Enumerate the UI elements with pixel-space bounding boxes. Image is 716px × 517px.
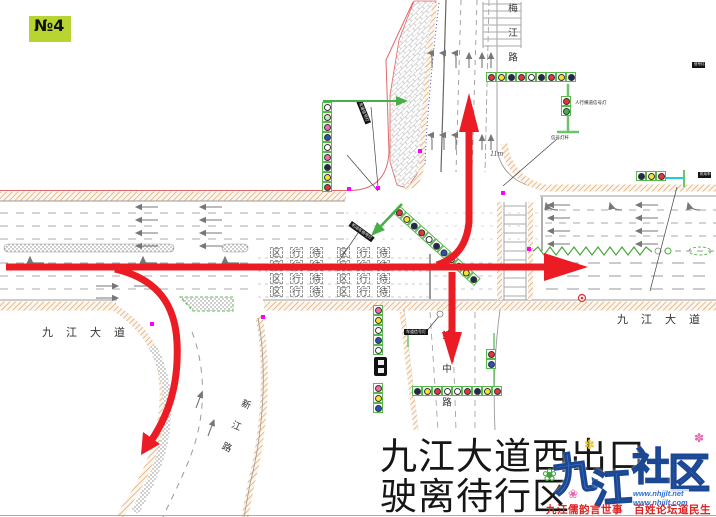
traffic-diagram-canvas: №4 九江大道 九江大道 梅江路 建中路 新江路 11m 区行待区行待区行待区行…	[0, 0, 716, 517]
yellow-flower-icon: ✽	[584, 438, 595, 451]
waiting-zone-cell: 区	[270, 260, 283, 271]
waiting-zone-grid: 区行待区行待区行待区行待区行待区行待区行待区行待	[270, 247, 390, 299]
waiting-zone-cell: 待	[310, 260, 323, 271]
waiting-zone-cell: 区	[337, 286, 350, 297]
waiting-zone-row: 区行待区行待	[270, 286, 390, 297]
waiting-zone-cell: 待	[310, 273, 323, 284]
sheet-number-badge: №4	[29, 16, 71, 42]
waiting-zone-cell: 区	[270, 273, 283, 284]
waiting-zone-cell: 区	[337, 247, 350, 258]
annotation-tag-east: 机动车信号灯	[698, 172, 711, 178]
waiting-zone-group: 区行待	[337, 286, 390, 297]
road-label-south: 建中路	[438, 330, 452, 430]
waiting-zone-row: 区行待区行待	[270, 260, 390, 271]
watermark-char-3: 社	[632, 436, 670, 491]
waiting-zone-cell: 待	[377, 286, 390, 297]
north-road	[390, 0, 716, 188]
waiting-zone-group: 区行待	[270, 260, 323, 271]
waiting-zone-cell: 行	[357, 273, 370, 284]
waiting-zone-group: 区行待	[270, 247, 323, 258]
waiting-zone-cell: 行	[290, 286, 303, 297]
clover-flower-icon: ❀	[542, 466, 557, 484]
watermark-url-net: www.nhjjlt.net	[633, 489, 688, 498]
waiting-zone-cell: 区	[337, 273, 350, 284]
road-label-east-avenue: 九江大道	[617, 311, 713, 327]
waiting-zone-cell: 待	[377, 247, 390, 258]
waiting-zone-group: 区行待	[337, 273, 390, 284]
waiting-zone-cell: 区	[337, 260, 350, 271]
waiting-zone-cell: 行	[357, 247, 370, 258]
waiting-zone-cell: 待	[310, 286, 323, 297]
waiting-zone-cell: 区	[270, 286, 283, 297]
watermark-slogan: 九江儒韵言世事 百姓论坛道民生	[546, 502, 711, 517]
pink-flower-icon: ❀	[568, 488, 578, 500]
road-label-west-avenue: 九江大道	[42, 324, 138, 340]
waiting-zone-row: 区行待区行待	[270, 247, 390, 258]
annotation-tag-topright: 信号灯杆	[692, 62, 705, 68]
waiting-zone-cell: 行	[290, 273, 303, 284]
pink-flower-icon-2: ✽	[694, 432, 704, 444]
waiting-zone-group: 区行待	[337, 247, 390, 258]
waiting-zone-group: 区行待	[270, 273, 323, 284]
waiting-zone-group: 区行待	[337, 260, 390, 271]
waiting-zone-cell: 待	[310, 247, 323, 258]
distance-note: 11m	[490, 149, 503, 158]
waiting-zone-group: 区行待	[270, 286, 323, 297]
waiting-zone-cell: 行	[357, 286, 370, 297]
waiting-zone-cell: 区	[270, 247, 283, 258]
gore-island	[180, 297, 233, 311]
waiting-zone-cell: 待	[377, 260, 390, 271]
waiting-zone-cell: 行	[290, 260, 303, 271]
road-label-north: 梅江路	[504, 3, 518, 83]
annotation-tag-south: 车道信号灯	[404, 329, 428, 335]
waiting-zone-cell: 行	[357, 260, 370, 271]
zigzag-median-marking	[532, 247, 652, 255]
site-watermark: 九 江 社 区 ❀ ✽ ❀ ✽ www.nhjjlt.net www.nhjjl…	[544, 432, 716, 517]
signal-countdown-display	[374, 357, 387, 376]
east-avenue-roadway	[532, 196, 716, 289]
waiting-zone-row: 区行待区行待	[270, 273, 390, 284]
waiting-zone-cell: 行	[290, 247, 303, 258]
signal-pole-label: 信号灯杆	[551, 135, 569, 141]
waiting-zone-cell: 待	[377, 273, 390, 284]
pedestrian-signal-label: 人行横道信号灯	[575, 100, 607, 106]
